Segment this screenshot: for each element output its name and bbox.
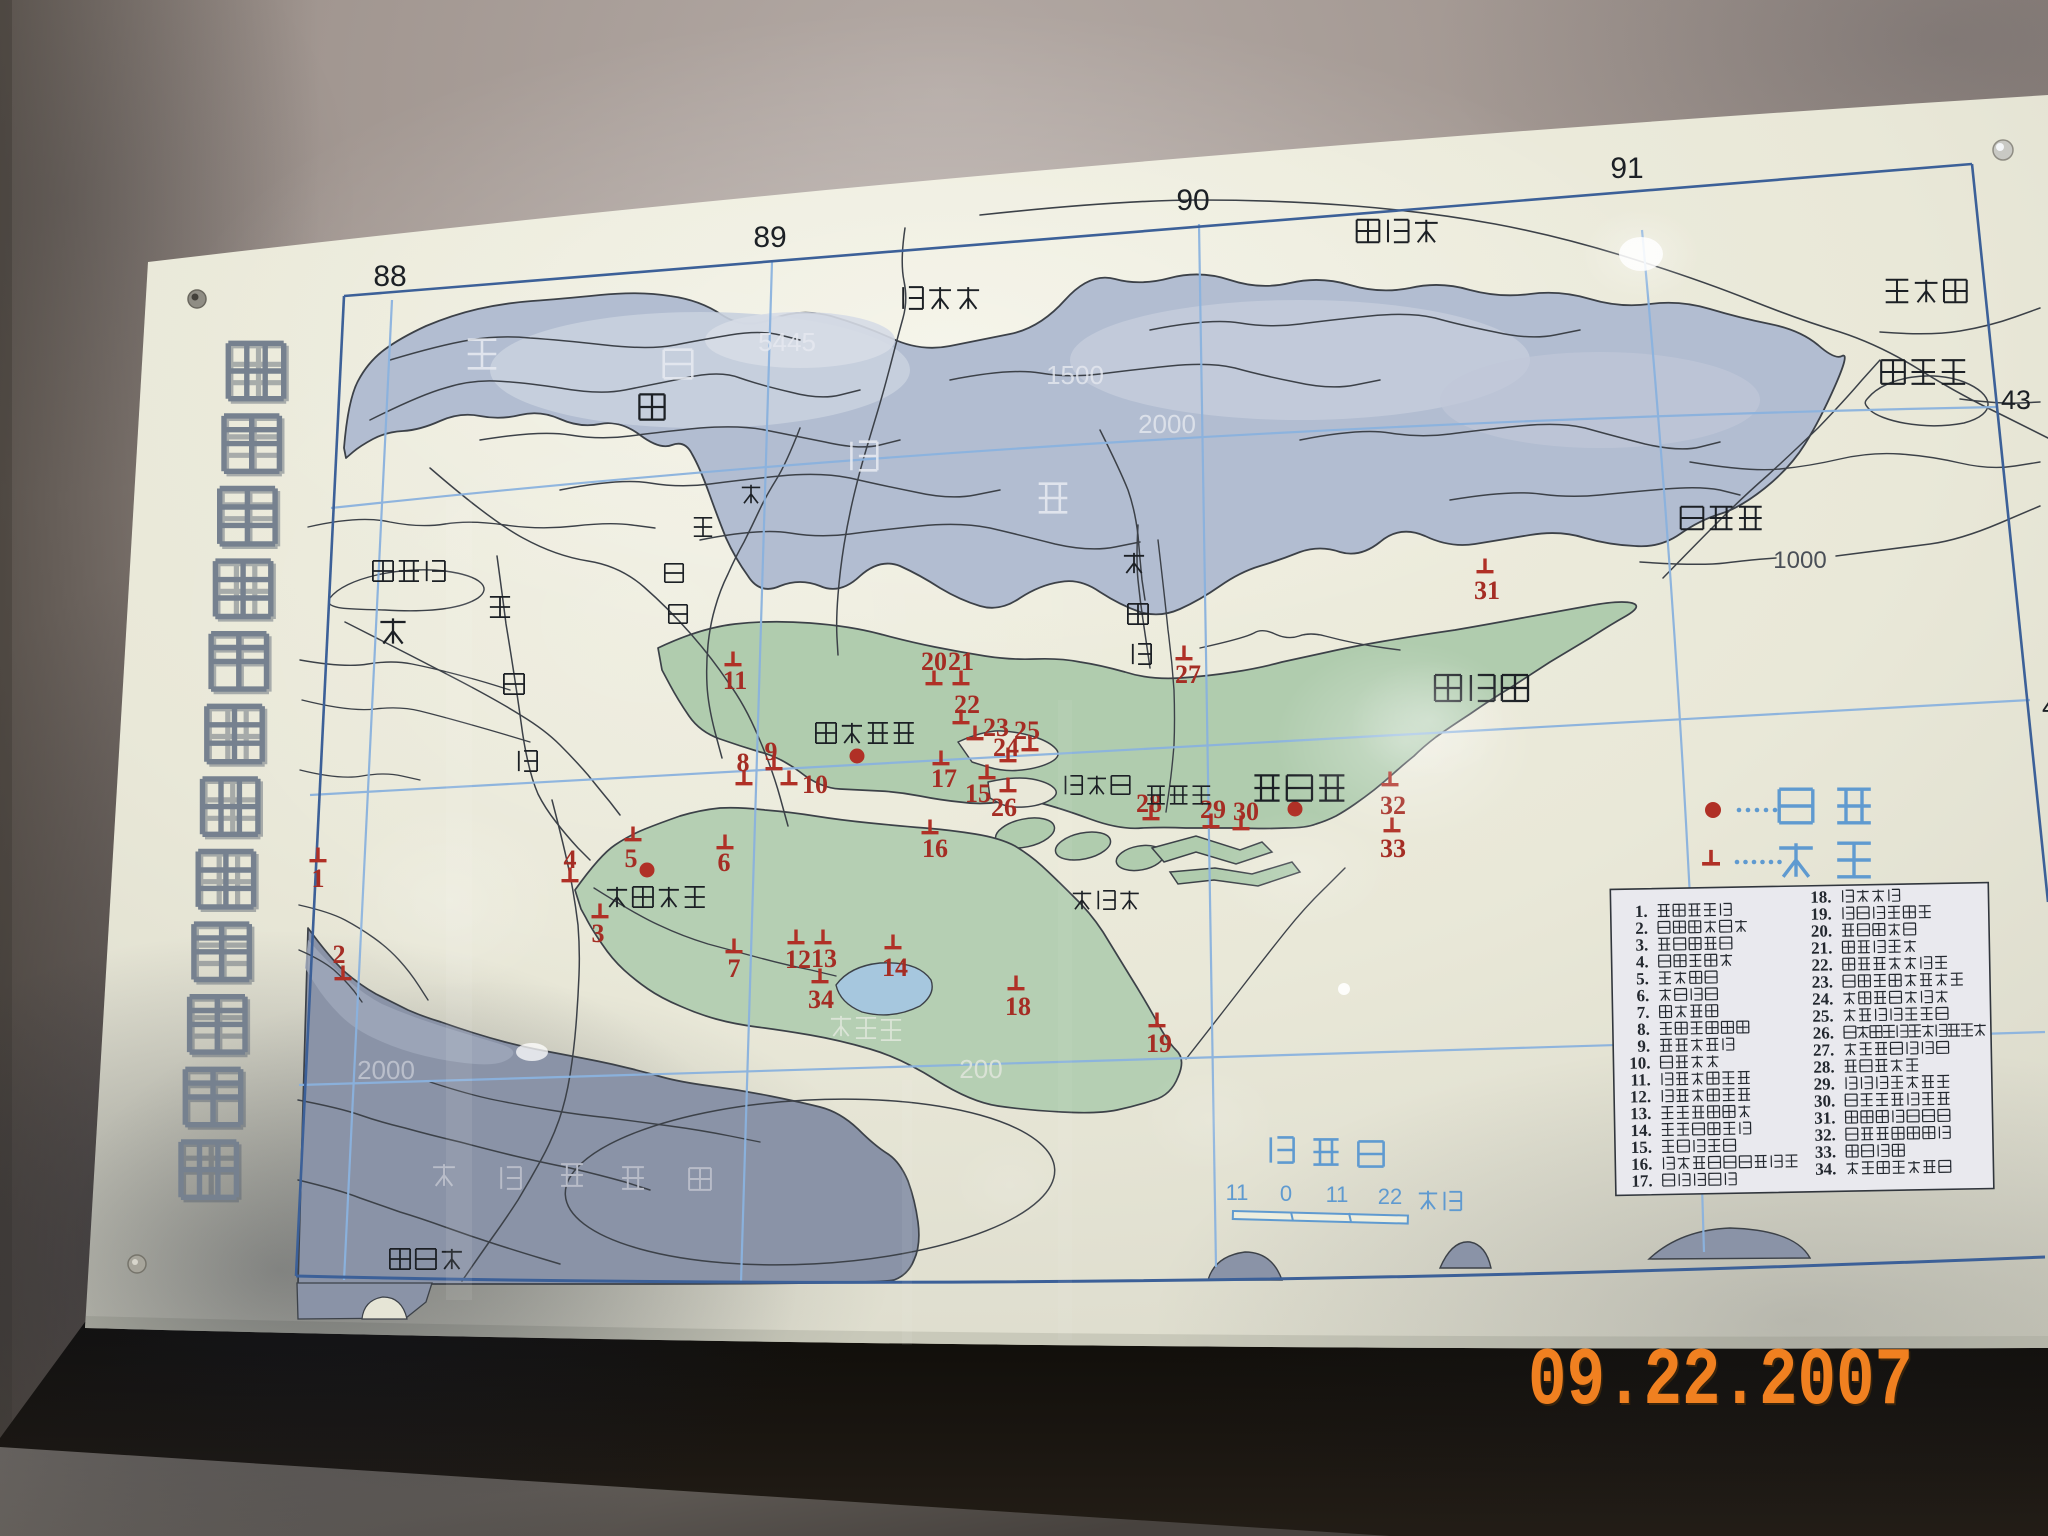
svg-text:12: 12	[785, 945, 811, 974]
svg-text:27: 27	[1175, 660, 1201, 689]
svg-text:89: 89	[753, 221, 786, 254]
svg-text:34: 34	[808, 985, 834, 1014]
svg-text:4: 4	[2042, 692, 2048, 722]
svg-text:25: 25	[1014, 716, 1040, 745]
svg-text:34.: 34.	[1815, 1159, 1837, 1178]
svg-text:6: 6	[718, 848, 731, 877]
svg-text:7: 7	[728, 954, 741, 983]
svg-text:2: 2	[333, 940, 346, 969]
svg-text:15: 15	[965, 779, 991, 808]
svg-text:17: 17	[931, 764, 957, 793]
svg-text:5445: 5445	[758, 327, 816, 357]
svg-text:200: 200	[959, 1054, 1002, 1084]
svg-text:10: 10	[802, 770, 828, 799]
svg-text:16: 16	[922, 834, 948, 863]
svg-text:11: 11	[1326, 1182, 1349, 1207]
svg-text:29: 29	[1200, 795, 1226, 824]
svg-text:09.22.2007: 09.22.2007	[1528, 1335, 1913, 1427]
svg-text:1000: 1000	[1773, 547, 1826, 574]
svg-text:17.: 17.	[1631, 1171, 1653, 1190]
svg-text:26: 26	[991, 793, 1017, 822]
svg-text:5: 5	[625, 844, 638, 873]
svg-text:19: 19	[1146, 1029, 1172, 1058]
svg-text:9: 9	[765, 737, 778, 766]
svg-text:14: 14	[882, 953, 908, 982]
svg-text:21: 21	[948, 647, 974, 676]
svg-text:91: 91	[1610, 152, 1643, 185]
svg-text:1: 1	[312, 864, 325, 893]
svg-text:43: 43	[2001, 385, 2031, 415]
svg-text:2000: 2000	[357, 1055, 415, 1085]
svg-text:2000: 2000	[1138, 409, 1196, 439]
svg-text:4: 4	[564, 845, 577, 874]
svg-text:22: 22	[1378, 1184, 1402, 1209]
svg-text:20: 20	[921, 647, 947, 676]
svg-text:88: 88	[373, 260, 406, 293]
svg-text:0: 0	[1280, 1181, 1292, 1206]
svg-text:11: 11	[1226, 1180, 1249, 1205]
svg-text:3: 3	[592, 919, 605, 948]
svg-text:22: 22	[954, 690, 980, 719]
svg-text:31: 31	[1474, 576, 1500, 605]
svg-text:8: 8	[737, 748, 750, 777]
svg-text:11: 11	[723, 666, 748, 695]
svg-text:18: 18	[1005, 992, 1031, 1021]
svg-text:13: 13	[811, 944, 837, 973]
svg-text:1500: 1500	[1046, 360, 1104, 390]
svg-text:90: 90	[1176, 184, 1209, 217]
